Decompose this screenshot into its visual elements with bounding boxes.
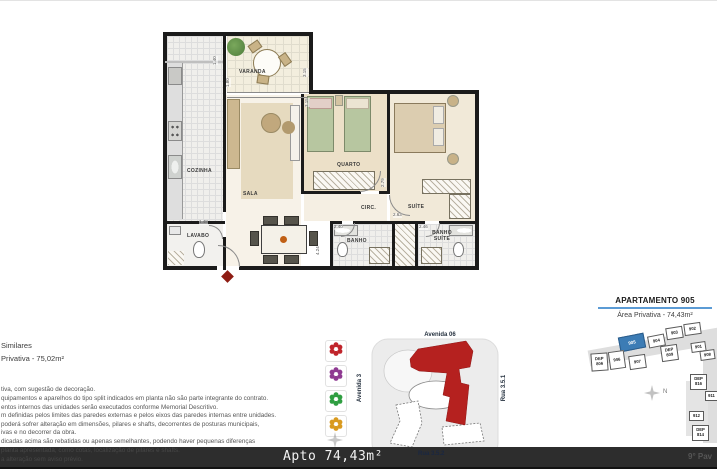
disclaimer-line: entos internos das unidades serão execut… [1,405,218,411]
suite-wardrobe [449,194,471,219]
dim-quarto-right: 2.79 [381,178,386,187]
brochure-page: VARANDA COZINHA SALA LAVABO QUARTO CIRC.… [0,0,717,472]
dining-chair [309,231,318,246]
keyplan-compass-label: N [663,389,667,395]
keyplan-unit-907: 907 [628,354,647,370]
keyplan-unit-dep816: DEP 816 [690,374,707,390]
disclaimer-line: m definidas pelos limites das paredes ex… [1,413,276,419]
dining-chair [263,255,278,264]
flower-red-icon [329,342,343,361]
keyplan-subtitle: Área Privativa - 74,43m² [596,312,714,319]
room-label-quarto: QUARTO [337,162,360,168]
table-centerpiece [280,236,287,243]
site-plan [366,331,506,463]
plant [227,38,245,56]
unit-type-fragment: Similares [1,341,32,350]
pillow [346,98,369,109]
sink [168,155,182,179]
street-label-left: Avenida 3 [357,366,363,410]
room-label-varanda: VARANDA [239,69,266,75]
pouf [261,113,281,133]
room-label-suite: SUÍTE [408,204,424,210]
banho-suite-toilet [453,242,464,257]
street-label-top: Avenida 06 [408,332,472,338]
lavabo-sink [169,226,181,235]
wall-banho-left [330,221,333,269]
banho-toilet [337,242,348,257]
dim-banho: 2.40 [334,225,343,230]
banho-suite-shower [421,247,442,264]
dim-varanda-right: 3.15 [303,68,308,77]
wall-shaft-left [392,224,395,269]
room-label-cozinha: COZINHA [187,168,212,174]
entry-marker [221,270,234,283]
suite-wardrobe [422,179,471,194]
bottom-bar-edge [0,467,717,469]
dining-chair [284,216,299,225]
street-label-bottom: Rua 3.5.2 [418,451,444,457]
disclaimer-line: quipamentos e aparelhos do tipo split in… [1,396,268,402]
side-table [447,95,459,107]
apartment-area-label: Apto 74,43m² [283,449,383,464]
keyplan-unit-906: 906 [608,350,626,370]
street-label-right: Rua 3.5.1 [501,366,507,410]
keyplan-unit-dep806: DEP 806 [590,352,608,371]
legend-item [325,340,347,362]
room-label-sala: SALA [243,191,258,197]
wall-top [163,32,313,36]
shaft-hatch [395,224,415,268]
pillow [433,128,444,146]
site-plan-drawing [366,331,506,463]
wall-upper-mid [309,90,479,94]
keyplan-unit-911: 911 [705,391,717,401]
stove [168,121,182,141]
keyplan-unit-dep809: DEP 809 [660,344,679,362]
room-label-banho: BANHO [347,238,367,244]
banho-shower [369,247,390,264]
nightstand [335,95,343,106]
side-table [447,153,459,165]
disclaimer-line: tiva, com sugestão de decoração. [1,387,95,393]
dim-quarto-left: 3.15 [305,98,310,107]
dim-sala-right: 4.24 [316,246,321,255]
wall-shaft-right [415,224,418,269]
dim-lavabo: 1.48 [199,220,208,225]
room-label-circ: CIRC. [361,205,376,211]
pouf [282,121,295,134]
legend-item [325,365,347,387]
floor-number-label: 9° Pav [688,452,712,461]
dim-banho-suite: 2.46 [419,225,428,230]
wall-quarto-bottom [301,191,361,194]
lavabo-toilet [193,241,205,258]
varanda-chair [256,74,269,85]
flower-purple-icon [329,367,343,386]
wall-sala-quarto [301,94,304,194]
floor-plan: VARANDA COZINHA SALA LAVABO QUARTO CIRC.… [163,29,483,284]
keyplan-compass-icon [644,385,660,406]
wall-quarto-bottom-stub [379,191,390,194]
disclaimer-line: dicadas acima são rebatidas ou apenas se… [1,439,255,445]
keyplan-unit-dep814: DEP 814 [692,425,709,441]
pillow [309,98,332,109]
keyplan-unit-912: 912 [689,411,704,421]
room-label-banho-suite: BANHO SUÍTE [429,231,455,243]
sofa [227,99,240,169]
lavabo-shaft-hatch [168,251,184,265]
wall-kitchen-right [223,32,226,212]
keyplan-unit-908: 908 [699,349,715,361]
wall-quarto-suite [387,90,390,191]
dim-suite-circ: 2.63 [393,213,402,218]
disclaimer-line: a alteração sem aviso prévio. [1,457,83,463]
wall-bottom-left [163,266,217,270]
dim-varanda-left: 1.40 [213,56,218,65]
flower-green-icon [329,392,343,411]
disclaimer-line: planta apresentada, como cotas, localiza… [1,448,180,454]
fridge [168,67,182,85]
disclaimer-line: ivas e no decorrer da obra. [1,430,76,436]
dining-chair [284,255,299,264]
keyplan-underline [598,307,712,309]
varanda-sliding-door [227,92,309,98]
legend-item [325,390,347,412]
wall-varanda-right [309,32,313,94]
dining-chair [250,231,259,246]
keyplan-unit-902: 902 [683,322,702,336]
wall-circ-bottom-c [439,221,479,224]
dining-chair [263,216,278,225]
pillow [433,106,444,124]
kitchen-counter [167,63,183,219]
room-label-lavabo: LAVABO [187,233,209,239]
wall-bottom-main [239,266,479,270]
wall-lavabo-top [163,221,225,224]
area-fragment: Privativa - 75,02m² [1,354,64,363]
dim-varanda-left-lower: 1.80 [226,78,231,87]
keyplan-title: APARTAMENTO 905 [596,296,714,305]
disclaimer-line: poderá sofrer alteração em dimensões, pi… [1,422,259,428]
wall-right [475,90,479,270]
